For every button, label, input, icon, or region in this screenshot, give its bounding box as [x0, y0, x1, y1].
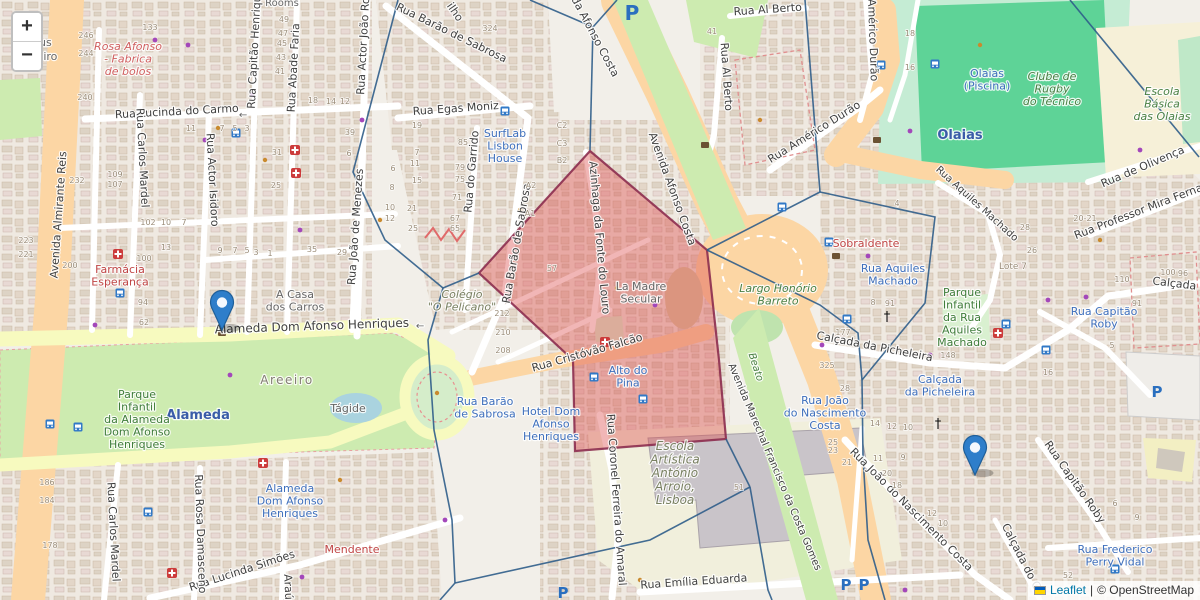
house-number: 11 — [186, 124, 196, 133]
bus-stop-icon — [501, 107, 510, 116]
kiosk-icon — [873, 137, 881, 143]
map-label: Tágide — [329, 402, 366, 415]
kiosk-icon — [701, 142, 709, 148]
house-number: 5 — [232, 124, 237, 133]
openstreetmap-link[interactable]: © OpenStreetMap — [1097, 583, 1194, 597]
house-number: 148 — [940, 351, 955, 360]
parking-icon: P — [625, 1, 640, 25]
shop-dot-icon — [298, 228, 303, 233]
house-number: 244 — [78, 49, 93, 58]
house-number: 28 — [1020, 223, 1030, 232]
attribution-separator: | — [1090, 583, 1093, 597]
map-label: ← — [416, 321, 424, 332]
poi-dot-icon — [338, 478, 342, 482]
house-number: 223 — [18, 236, 33, 245]
house-number: 5 — [1109, 341, 1114, 350]
house-number: 3 — [244, 124, 249, 133]
house-number: 43 — [276, 53, 286, 62]
house-number: 107 — [107, 180, 122, 189]
land-area — [1156, 448, 1185, 472]
poi-dot-icon — [978, 43, 982, 47]
shop-dot-icon — [360, 118, 365, 123]
shop-dot-icon — [908, 129, 913, 134]
kiosk-icon — [832, 253, 840, 259]
house-number: 57 — [547, 264, 557, 273]
house-number: C3 — [557, 139, 568, 148]
house-number: 62 — [139, 318, 149, 327]
map-label: SurfLabLisbonHouse — [484, 127, 526, 165]
house-number: 7 — [181, 218, 186, 227]
map-label: Rooms — [265, 0, 299, 9]
shop-dot-icon — [903, 588, 908, 593]
house-number: 7 — [232, 246, 237, 255]
house-number: 14 — [870, 419, 880, 428]
house-number: 240 — [77, 93, 92, 102]
map-viewport[interactable]: †††PPPPP Avenida Almirante ReisRua Lucin… — [0, 0, 1200, 600]
house-number: 20 — [882, 469, 892, 478]
map-label: Olaias — [937, 128, 983, 143]
bus-stop-icon — [1002, 320, 1011, 329]
house-number: 221 — [18, 250, 33, 259]
house-number: 12 — [927, 509, 937, 518]
house-number: 100 — [1160, 268, 1175, 277]
house-number: 52 — [1063, 571, 1073, 580]
house-number: 100 — [136, 254, 151, 263]
house-number: 79 — [455, 163, 465, 172]
house-number: 208 — [495, 346, 510, 355]
shop-dot-icon — [866, 254, 871, 259]
shop-dot-icon — [228, 373, 233, 378]
house-number: 6 — [390, 164, 395, 173]
house-number: 9 — [1134, 513, 1139, 522]
house-number: 12 — [385, 214, 395, 223]
house-number: 3 — [253, 248, 258, 257]
bus-stop-icon — [931, 60, 940, 69]
house-number: 47 — [278, 29, 288, 38]
ukraine-flag-icon — [1034, 586, 1046, 595]
house-number: 13 — [161, 243, 171, 252]
parking-icon: P — [859, 576, 870, 594]
poi-dot-icon — [378, 218, 382, 222]
map-label: Lote 7 — [999, 262, 1027, 272]
house-number: 19 — [412, 121, 422, 130]
map-label: FarmáciaEsperança — [91, 263, 148, 289]
house-number: 9 — [217, 246, 222, 255]
house-number: 14 — [326, 97, 336, 106]
shop-dot-icon — [1138, 148, 1143, 153]
church-icon: † — [884, 310, 891, 325]
medical-icon — [290, 145, 300, 155]
map-label: ← — [239, 110, 247, 121]
house-number: 65 — [450, 224, 460, 233]
house-number: 1 — [267, 249, 272, 258]
house-number: 21 — [842, 458, 852, 467]
house-number: 177 — [835, 328, 850, 337]
map-label: Rua Barãode Sabrosa — [454, 395, 515, 421]
house-number: 10 — [903, 423, 913, 432]
house-number: 324 — [482, 24, 497, 33]
house-number: A1 — [525, 209, 536, 218]
house-number: 85 — [458, 138, 468, 147]
house-number: 325 — [819, 361, 834, 370]
map-label: Alameda — [166, 408, 230, 423]
house-number: 35 — [307, 245, 317, 254]
parking-icon: P — [841, 576, 852, 594]
house-number: 45 — [277, 39, 287, 48]
house-number: B2 — [557, 156, 568, 165]
house-number: 18 — [892, 481, 902, 490]
house-number: 12 — [340, 97, 350, 106]
bus-stop-icon — [144, 508, 153, 517]
house-number: 71 — [452, 193, 462, 202]
medical-icon — [993, 328, 1003, 338]
house-number: 212 — [494, 309, 509, 318]
house-number: 39 — [345, 128, 355, 137]
house-number: 28 — [840, 384, 850, 393]
bus-stop-icon — [590, 373, 599, 382]
bus-stop-icon — [74, 423, 83, 432]
house-number: 7 — [414, 148, 419, 157]
map-label: Olaias(Piscina) — [964, 67, 1011, 93]
house-number: 10 — [161, 218, 171, 227]
zoom-control: + − — [11, 11, 43, 72]
house-number: 67 — [450, 214, 460, 223]
map-label: ParqueInfantilda RuaAquilesMachado — [937, 286, 987, 349]
shop-dot-icon — [443, 518, 448, 523]
map-label: AlamedaDom AfonsoHenriques — [257, 482, 324, 520]
zoom-in-button[interactable]: + — [13, 13, 41, 42]
house-number: 20-21 — [1073, 214, 1096, 223]
house-number: 10 — [938, 519, 948, 528]
house-number: 94 — [138, 298, 148, 307]
house-number: 29 — [337, 248, 347, 257]
house-number: 31 — [272, 148, 282, 157]
house-number: 186 — [39, 478, 54, 487]
house-number: 91 — [885, 299, 895, 308]
map-label: Araújo — [281, 574, 296, 600]
poi-dot-icon — [435, 391, 439, 395]
poi-dot-icon — [758, 118, 762, 122]
house-number: C2 — [557, 121, 568, 130]
shop-dot-icon — [820, 343, 825, 348]
land-area — [0, 78, 42, 140]
map-label: Areeiro — [260, 373, 314, 387]
land-area — [915, 0, 1112, 172]
house-number: 21 — [407, 204, 417, 213]
bus-stop-icon — [1042, 346, 1051, 355]
house-number: 26 — [1027, 246, 1037, 255]
shop-dot-icon — [1084, 295, 1089, 300]
zoom-out-button[interactable]: − — [13, 42, 41, 70]
medical-icon — [167, 568, 177, 578]
house-number: 23 — [828, 446, 838, 455]
shop-dot-icon — [1046, 298, 1051, 303]
poi-dot-icon — [1098, 238, 1102, 242]
house-number: 178 — [42, 541, 57, 550]
medical-icon — [258, 458, 268, 468]
house-number: 102 — [140, 218, 155, 227]
house-number: 11 — [873, 454, 883, 463]
attribution-bar: Leaflet | © OpenStreetMap — [1028, 581, 1200, 600]
house-number: 246 — [78, 31, 93, 40]
bus-stop-icon — [639, 395, 648, 404]
house-number: 49 — [279, 15, 289, 24]
house-number: 6 — [1112, 499, 1117, 508]
church-icon: † — [935, 417, 942, 432]
house-number: 232 — [69, 176, 84, 185]
house-number: 25 — [271, 181, 281, 190]
map-canvas[interactable]: †††PPPPP Avenida Almirante ReisRua Lucin… — [0, 0, 1200, 600]
medical-icon — [291, 168, 301, 178]
house-number: 51 — [734, 483, 744, 492]
house-number: 16 — [1043, 368, 1053, 377]
leaflet-link[interactable]: Leaflet — [1050, 583, 1086, 597]
poi-dot-icon — [263, 158, 267, 162]
map-label: EscolaArtísticaAntónioArroio,Lisboa — [649, 439, 699, 507]
land-area — [1126, 352, 1200, 420]
house-number: 15 — [412, 176, 422, 185]
house-number: 96 — [1178, 269, 1188, 278]
house-number: 8 — [389, 183, 394, 192]
house-number: A2 — [526, 181, 537, 190]
house-number: 91 — [1132, 299, 1142, 308]
house-number: 41 — [275, 67, 285, 76]
parking-icon: P — [558, 584, 569, 600]
house-number: 18 — [905, 29, 915, 38]
house-number: 110 — [1114, 275, 1129, 284]
map-label: Mendente — [324, 543, 379, 556]
house-number: 7 — [219, 124, 224, 133]
shop-dot-icon — [93, 323, 98, 328]
house-number: 9 — [900, 453, 905, 462]
house-number: 5 — [244, 246, 249, 255]
house-number: 109 — [107, 170, 122, 179]
house-number: 16 — [905, 63, 915, 72]
shop-dot-icon — [186, 43, 191, 48]
house-number: 75 — [455, 175, 465, 184]
house-number: 133 — [142, 23, 157, 32]
house-number: 25 — [408, 224, 418, 233]
map-label: Rua FredericoPerry Vidal — [1077, 543, 1152, 569]
house-number: 6 — [346, 149, 351, 158]
house-number: 10 — [385, 203, 395, 212]
house-number: 184 — [39, 496, 54, 505]
house-number: 11 — [410, 159, 420, 168]
house-number: 12 — [887, 422, 897, 431]
map-label: Rua AquilesMachado — [861, 262, 926, 288]
bus-stop-icon — [778, 203, 787, 212]
bus-stop-icon — [116, 289, 125, 298]
bus-stop-icon — [843, 315, 852, 324]
house-number: 200 — [62, 261, 77, 270]
shop-dot-icon — [300, 575, 305, 580]
map-label: La MadreSecular — [616, 280, 667, 306]
house-number: 41 — [707, 27, 717, 36]
medical-icon — [113, 249, 123, 259]
house-number: 210 — [495, 328, 510, 337]
house-number: 18 — [308, 96, 318, 105]
parking-icon: P — [1152, 383, 1163, 401]
house-number: 8 — [870, 298, 875, 307]
bus-stop-icon — [46, 420, 55, 429]
house-number: 4 — [894, 199, 899, 208]
map-label: Sobraldente — [833, 237, 900, 250]
